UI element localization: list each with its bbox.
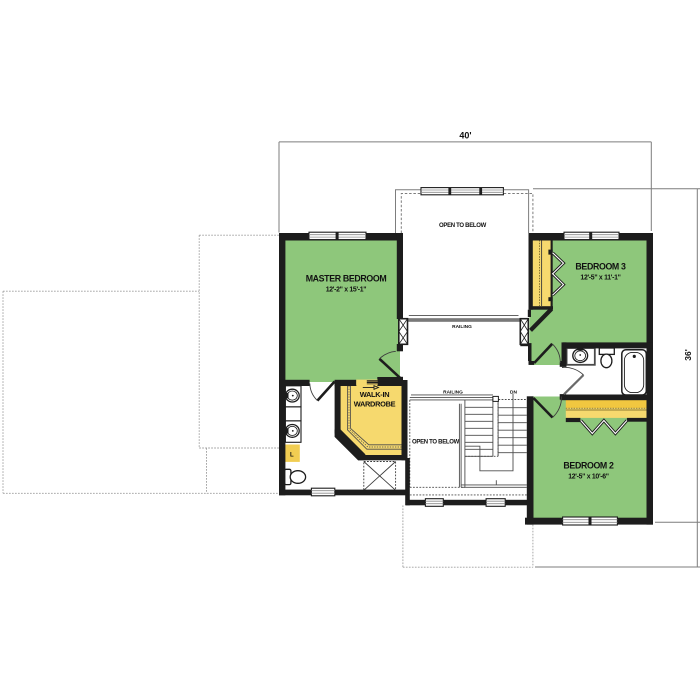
svg-text:12'-5" x 10'-6": 12'-5" x 10'-6" (568, 474, 609, 481)
svg-text:OPEN TO BELOW: OPEN TO BELOW (439, 223, 487, 229)
svg-text:WARDROBE: WARDROBE (354, 400, 396, 409)
svg-text:12'-5" x 11'-1": 12'-5" x 11'-1" (580, 275, 620, 282)
svg-text:WALK-IN: WALK-IN (360, 390, 390, 399)
svg-text:L: L (290, 452, 294, 458)
svg-text:OPEN TO BELOW: OPEN TO BELOW (412, 439, 460, 445)
svg-text:DN: DN (510, 389, 517, 395)
svg-text:RAILING: RAILING (443, 389, 463, 395)
svg-text:MASTER BEDROOM: MASTER BEDROOM (306, 274, 387, 284)
svg-text:BEDROOM 2: BEDROOM 2 (563, 461, 614, 471)
svg-text:40': 40' (459, 131, 471, 141)
svg-text:36': 36' (683, 349, 693, 360)
svg-text:12'-2" x 15'-1": 12'-2" x 15'-1" (326, 287, 367, 294)
svg-text:RAILING: RAILING (452, 324, 472, 330)
svg-text:BEDROOM 3: BEDROOM 3 (575, 262, 626, 272)
